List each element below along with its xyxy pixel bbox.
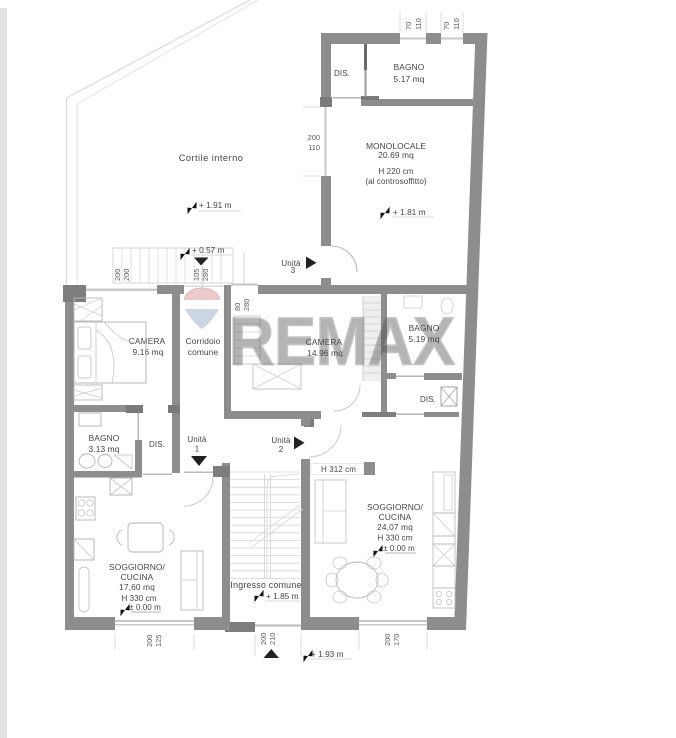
- svg-text:200: 200: [145, 635, 154, 647]
- svg-text:DIS.: DIS.: [334, 69, 350, 78]
- svg-text:Unità: Unità: [187, 435, 207, 444]
- svg-text:3: 3: [291, 266, 296, 275]
- svg-text:+ 1.91 m: + 1.91 m: [199, 200, 232, 210]
- svg-text:125: 125: [154, 635, 163, 647]
- svg-text:CUCINA: CUCINA: [121, 572, 154, 582]
- svg-text:SOGGIORNO/: SOGGIORNO/: [109, 562, 165, 572]
- svg-text:70: 70: [404, 22, 413, 30]
- svg-text:comune: comune: [188, 347, 219, 357]
- svg-text:(al controsoffitto): (al controsoffitto): [365, 177, 427, 186]
- svg-text:200: 200: [383, 634, 392, 646]
- svg-text:5.17 mq: 5.17 mq: [394, 74, 425, 84]
- svg-text:200: 200: [259, 633, 268, 645]
- svg-text:210: 210: [268, 633, 277, 645]
- svg-text:+ 0.57 m: + 0.57 m: [192, 245, 225, 255]
- svg-text:BAGNO: BAGNO: [89, 433, 120, 443]
- svg-text:+ 1.85 m: + 1.85 m: [266, 591, 299, 601]
- svg-text:H 312 cm: H 312 cm: [321, 465, 356, 474]
- svg-text:Corridoio: Corridoio: [186, 336, 221, 346]
- svg-text:REMAX: REMAX: [229, 304, 455, 380]
- svg-text:200: 200: [122, 269, 131, 281]
- svg-text:DIS.: DIS.: [420, 395, 436, 404]
- svg-text:CUCINA: CUCINA: [379, 512, 412, 522]
- svg-text:DIS.: DIS.: [149, 440, 165, 449]
- svg-text:± 0.00 m: ± 0.00 m: [129, 603, 161, 612]
- svg-text:1: 1: [195, 445, 200, 454]
- svg-text:Ingresso comune: Ingresso comune: [230, 580, 301, 590]
- svg-text:110: 110: [414, 18, 423, 30]
- svg-text:170: 170: [392, 634, 401, 646]
- svg-text:2: 2: [279, 445, 284, 454]
- svg-text:± 0.00 m: ± 0.00 m: [383, 544, 415, 553]
- svg-text:17,60 mq: 17,60 mq: [119, 582, 155, 592]
- svg-text:Cortile interno: Cortile interno: [179, 153, 244, 163]
- svg-text:Unità: Unità: [271, 436, 291, 445]
- svg-text:CAMERA: CAMERA: [129, 336, 166, 346]
- svg-text:+ 1.81 m: + 1.81 m: [393, 207, 426, 217]
- svg-text:3.13 mq: 3.13 mq: [89, 444, 120, 454]
- svg-text:+ 1.93 m: + 1.93 m: [311, 649, 344, 659]
- svg-text:SOGGIORNO/: SOGGIORNO/: [367, 502, 423, 512]
- svg-text:9.16 mq: 9.16 mq: [133, 347, 164, 357]
- svg-text:H 330 cm: H 330 cm: [121, 594, 156, 603]
- svg-text:H 330 cm: H 330 cm: [377, 534, 412, 543]
- svg-text:BAGNO: BAGNO: [394, 62, 425, 72]
- svg-text:20.69 mq: 20.69 mq: [378, 150, 414, 160]
- svg-text:H 220 cm: H 220 cm: [378, 167, 413, 176]
- svg-text:110: 110: [308, 143, 320, 152]
- svg-text:200: 200: [308, 133, 320, 142]
- svg-text:200: 200: [113, 269, 122, 281]
- svg-text:70: 70: [442, 22, 451, 30]
- svg-text:110: 110: [452, 18, 461, 30]
- svg-text:24,07 mq: 24,07 mq: [377, 522, 413, 532]
- svg-text:105: 105: [192, 269, 201, 281]
